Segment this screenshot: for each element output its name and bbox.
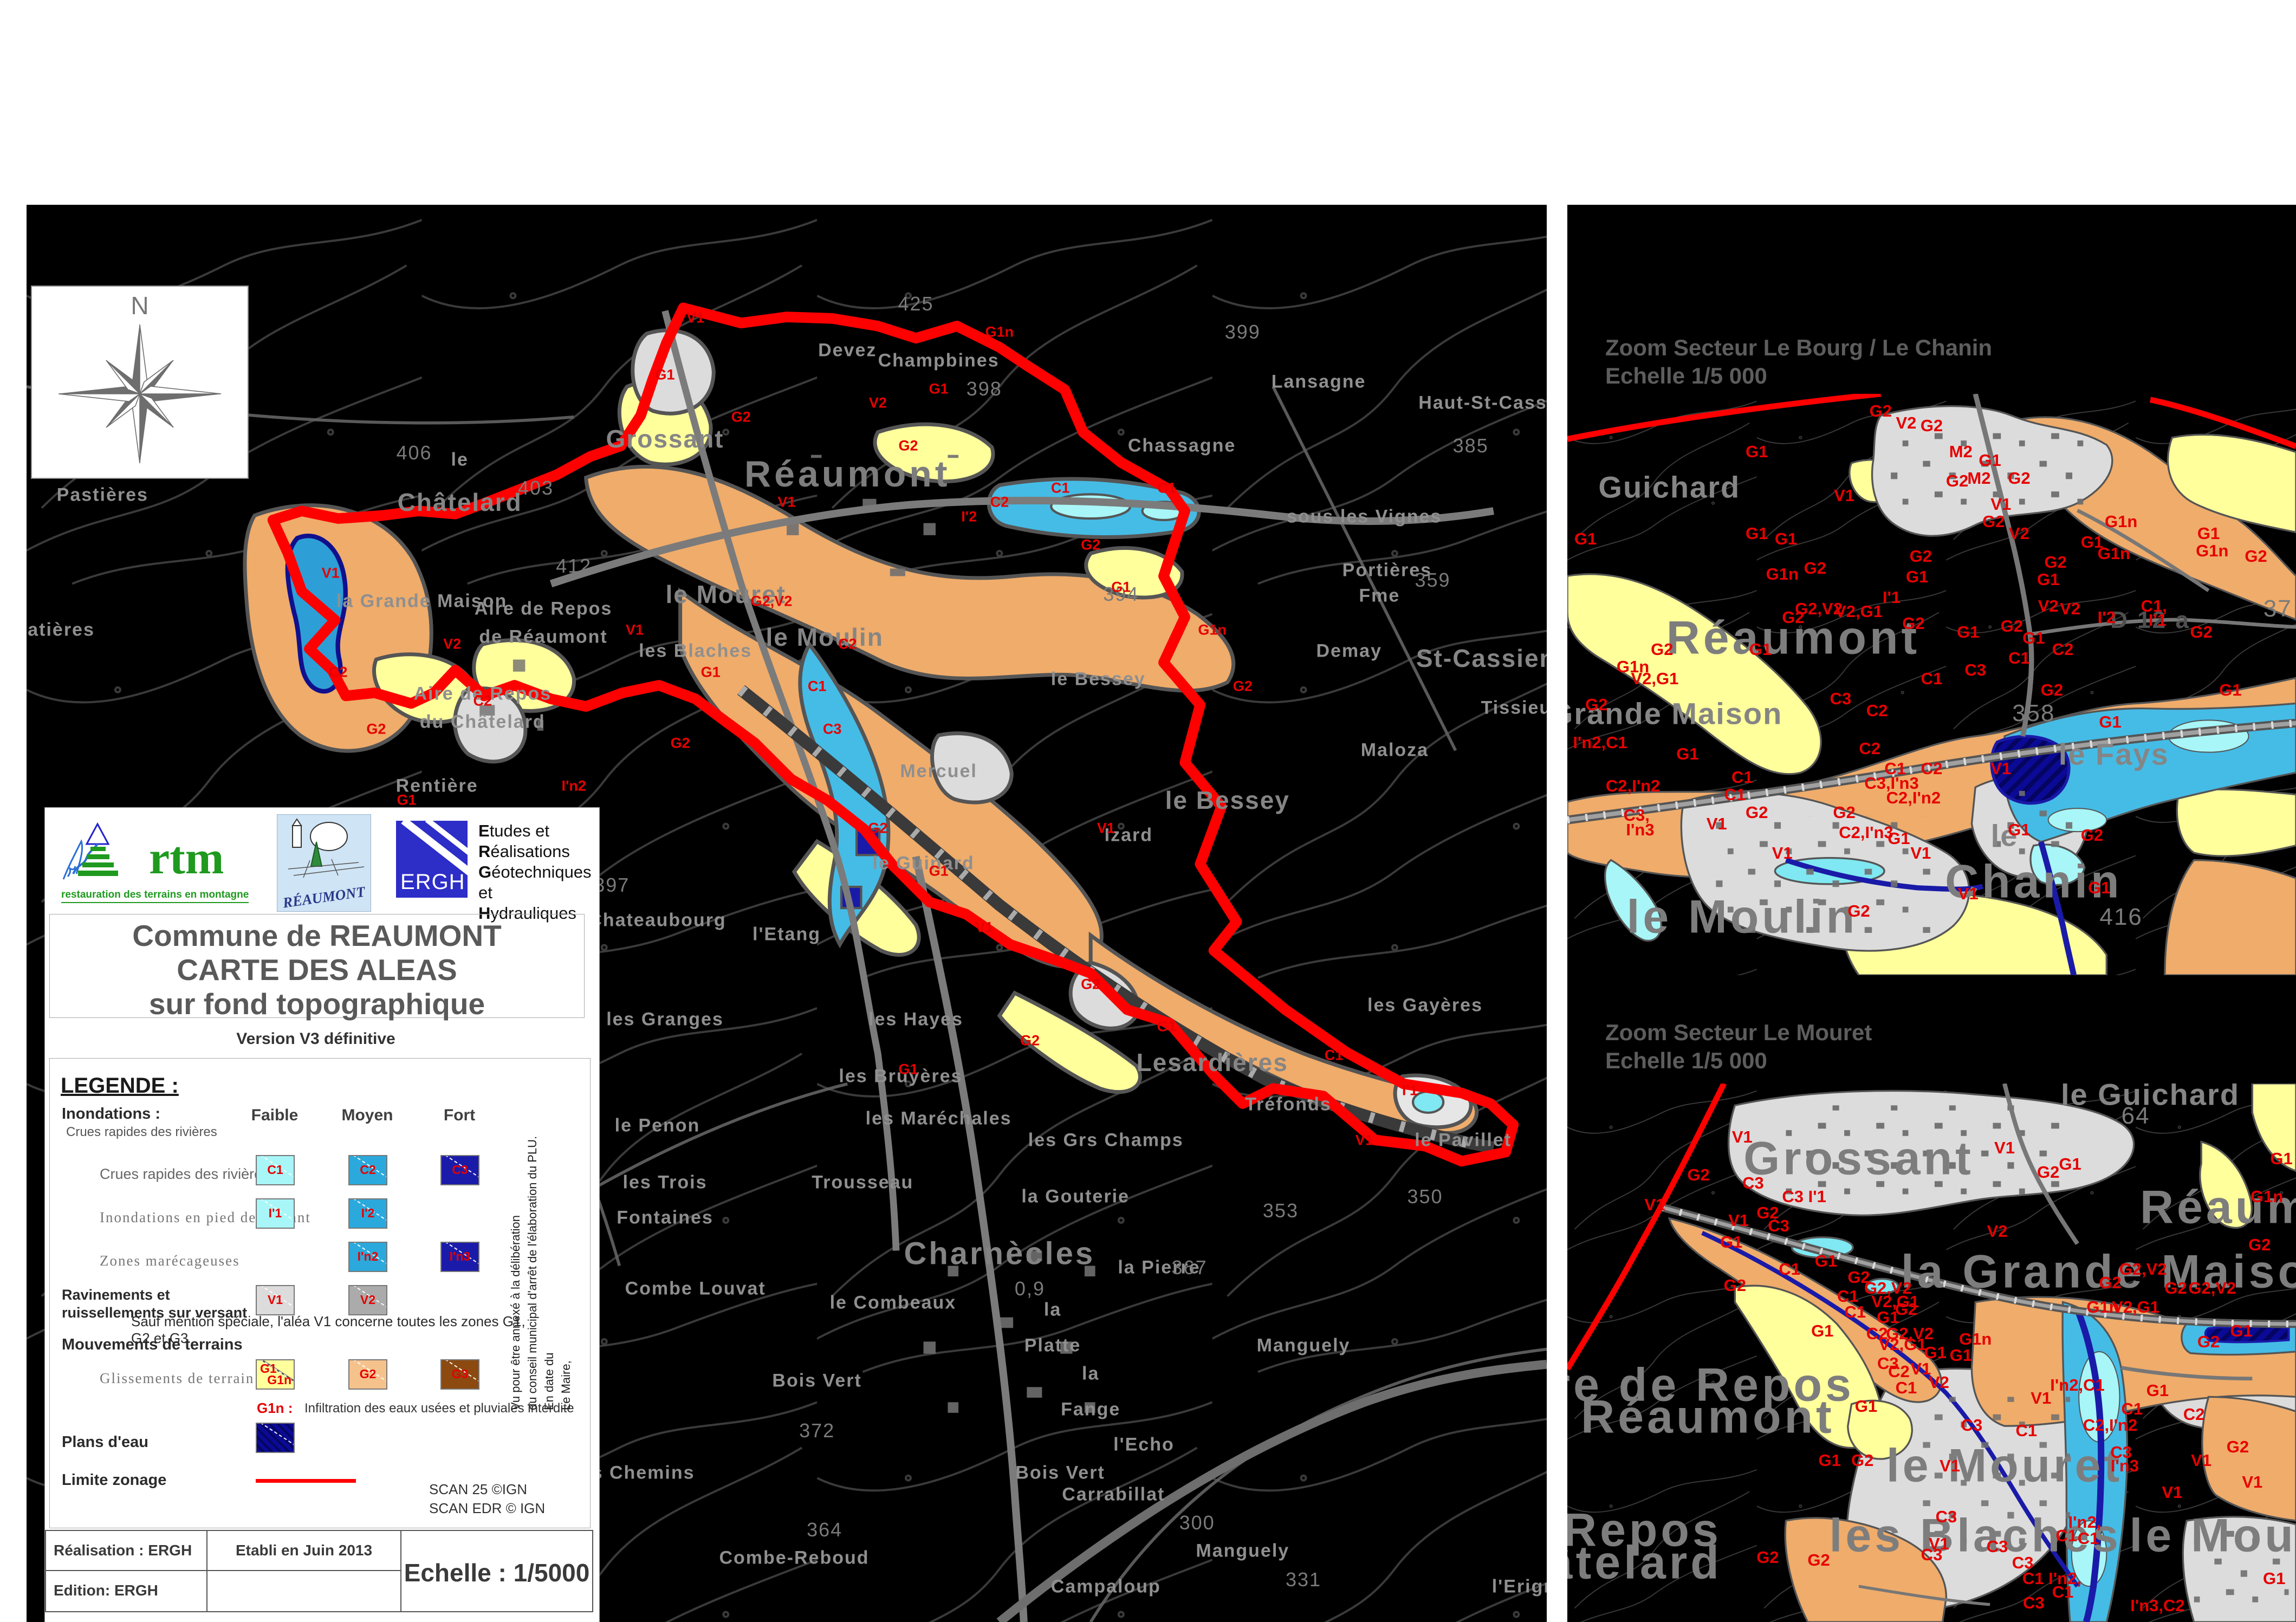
zoom1-zone-code: G2 — [1982, 512, 2005, 531]
map-elevation-label: 300 — [1179, 1511, 1215, 1534]
realisation-cell: Réalisation : ERGH — [46, 1531, 207, 1571]
map-elevation-label: 412 — [556, 555, 592, 578]
zoom1-zone-code: G2 — [1902, 614, 1924, 633]
map-place-label: les Gayères — [1367, 995, 1483, 1016]
map-place-label: Lesardières — [1137, 1048, 1288, 1077]
zoom2-zone-code: G2 — [1756, 1548, 1779, 1567]
map-place-label: Charnècles — [904, 1235, 1095, 1271]
legend-row-crues-label: Crues rapides des rivières — [100, 1166, 270, 1183]
zoom1-zone-code: G2 — [1833, 803, 1855, 822]
map-place-label: les Hayes — [868, 1009, 963, 1030]
zoom2-zone-code: G2,V2 — [2188, 1279, 2236, 1298]
hazard-zone-code: G1 — [656, 366, 675, 383]
hazard-zone-code: G1 — [898, 1061, 918, 1078]
hazard-zone-code: G1 — [929, 862, 949, 879]
map-place-label: Grossant — [606, 424, 724, 453]
zoom1-zone-code: M2 — [1949, 442, 1973, 462]
map-place-label: l'Echo — [1113, 1435, 1175, 1456]
zoom1-place-label: 358 — [2012, 700, 2055, 727]
info-table: Réalisation : ERGH Etabli en Juin 2013 E… — [45, 1530, 593, 1612]
zoom1-zone-code: G2 — [2190, 622, 2212, 642]
zoom1-zone-code: C1 — [1731, 768, 1753, 787]
zoom1-zone-code: C3 — [1830, 689, 1852, 709]
zoom1-zone-code: G2 — [1804, 559, 1826, 578]
zoom1-zone-code: G1 — [1979, 451, 2001, 470]
hazard-zone-code: G1 — [397, 791, 416, 808]
map-elevation-label: 367 — [1172, 1256, 1208, 1279]
hazard-zone-code: I'2 — [961, 508, 977, 525]
map-place-label: Lansagne — [1272, 372, 1366, 393]
zoom1-zone-code: V2 — [2038, 596, 2059, 616]
zoom1-zone-code: V1 — [1958, 884, 1979, 904]
map-title-line2: CARTE DES ALEAS — [50, 953, 584, 987]
map-place-label: la Gouterie — [1021, 1186, 1130, 1208]
map-place-label: Châtelard — [398, 488, 522, 517]
hazard-zone-code: V1 — [975, 919, 993, 936]
zoom2-zone-code: G2 — [1724, 1276, 1746, 1295]
hazard-zone-code: I'n2 — [561, 777, 586, 794]
map-title-line3: sur fond topographique — [50, 987, 584, 1021]
zoom1-zone-code: C2 — [2052, 640, 2074, 659]
map-elevation-label: 359 — [1415, 569, 1451, 592]
zoom1-zone-code: V1 — [1834, 486, 1854, 505]
hazard-zone-code: V1 — [322, 565, 340, 582]
zoom-sector-1-scale: Echelle 1/5 000 — [1605, 362, 1992, 390]
zoom2-zone-code: G2 — [2248, 1235, 2271, 1255]
zoom1-zone-code: I'1 — [1883, 588, 1901, 607]
zoom1-zone-code: G2 — [1921, 416, 1943, 436]
map-place-label: Combe Louvat — [625, 1279, 766, 1300]
zoom1-zone-code: V2 — [1896, 413, 1916, 433]
zoom2-zone-code: V1 — [1910, 1359, 1931, 1379]
legend-col-fort: Fort — [427, 1106, 492, 1125]
zoom1-zone-code: G2 — [2081, 826, 2103, 845]
map-place-label: les Grs Champs — [1028, 1130, 1184, 1151]
map-elevation-label: 399 — [1225, 321, 1261, 343]
map-place-label: Champbines — [878, 350, 1000, 371]
legend-row-glissements-label: Glissements de terrain — [100, 1370, 254, 1387]
swatch-c3: C3 — [440, 1155, 479, 1185]
map-place-label: St-Cassien — [1416, 644, 1547, 673]
map-elevation-label: 353 — [1263, 1199, 1299, 1222]
zoom-sector-column: Zoom Secteur Le Bourg / Le Chanin Echell… — [1567, 205, 2296, 1622]
hazard-zone-code: G2 — [898, 437, 918, 454]
zoom1-zone-code: G1 — [1775, 529, 1797, 549]
map-place-label: Tréfonds — [1245, 1094, 1332, 1115]
zoom2-zone-code: V1 — [1994, 1138, 2015, 1158]
map-place-label: Demay — [1316, 641, 1382, 662]
swatch-i1: I'1 — [256, 1198, 295, 1229]
map-place-label: du Châtelard — [420, 711, 546, 732]
map-place-label: urbatières — [27, 619, 95, 640]
map-place-label: le Combeaux — [830, 1293, 957, 1314]
map-place-label: l'Erign — [1492, 1576, 1547, 1597]
commune-logo-drawing — [277, 815, 369, 880]
hazard-zone-code: V1 — [777, 494, 795, 511]
swatch-c2: C2 — [348, 1155, 387, 1185]
zoom2-zone-code: V1 — [1728, 1211, 1749, 1230]
legend-section-inondations-sub: Crues rapides des rivières — [66, 1125, 217, 1140]
zoom2-zone-code: I'n2,C1 — [2050, 1376, 2104, 1395]
map-place-label: Bois Vert — [772, 1371, 861, 1392]
map-elevation-label: 406 — [396, 442, 432, 464]
hazard-zone-code: G1 — [701, 664, 721, 681]
hazard-zone-code: G2 — [1081, 536, 1100, 553]
zoom1-zone-code: C1 — [2008, 648, 2030, 668]
swatch-in3: I'n3 — [440, 1242, 479, 1272]
zoom1-zone-code: C3 — [1964, 660, 1986, 680]
zoom2-zone-code: G2 — [2197, 1332, 2220, 1352]
map-place-label: le Guinard — [872, 853, 974, 874]
map-place-label: Mercuel — [900, 761, 977, 782]
map-elevation-label: 364 — [807, 1519, 842, 1541]
zoom1-zone-code: G1 — [2219, 680, 2241, 700]
swatch-i2: I'2 — [348, 1198, 387, 1229]
zoom1-zone-code: G1 — [1746, 524, 1768, 543]
zoom2-zone-code: G1n — [2250, 1187, 2283, 1206]
map-place-label: Fontaines — [617, 1208, 714, 1229]
map-place-label: Campaloup — [1051, 1576, 1161, 1597]
zoom1-zone-code: G1 — [2008, 820, 2030, 840]
map-elevation-label: 403 — [518, 477, 554, 499]
zoom2-zone-code: C3 I'1 — [1782, 1187, 1826, 1206]
zoom2-zone-code: C3 — [2023, 1593, 2045, 1613]
zoom2-zone-code: G1 — [1819, 1451, 1841, 1470]
zoom1-zone-code: G1 — [2022, 628, 2045, 648]
zoom2-zone-code: C1 — [2052, 1582, 2074, 1602]
zoom2-zone-code: G2 — [2099, 1273, 2121, 1293]
hazard-zone-code: V1 — [1097, 820, 1115, 837]
map-place-label: Fange — [1061, 1399, 1120, 1420]
zoom1-zone-code: C2 — [1921, 759, 1943, 778]
map-place-label: Bois Vert — [1015, 1463, 1105, 1484]
hazard-zone-code: V1 — [686, 310, 704, 327]
hazard-zone-code: C2 — [329, 664, 348, 681]
commune-logo: RÉAUMONT — [277, 814, 371, 912]
zoom-sector-2-title: Zoom Secteur Le Mouret Echelle 1/5 000 — [1605, 1018, 1872, 1075]
hazard-zone-code: G2 — [868, 820, 887, 837]
ergh-logo-square-icon: ERGH — [396, 821, 468, 898]
zoom1-zone-code: C2 — [1859, 739, 1880, 758]
hazard-zone-code: G2 — [671, 735, 690, 752]
map-place-label: les Blaches — [639, 641, 752, 662]
ergh-acronym: ERGH — [400, 870, 465, 894]
swatch-c1: C1 — [256, 1155, 295, 1185]
map-elevation-label: 398 — [967, 378, 1002, 400]
zoom2-zone-code: G1n — [1959, 1329, 1992, 1349]
ign-credits: SCAN 25 ©IGN SCAN EDR © IGN — [429, 1480, 586, 1518]
hazard-zone-code: C2 — [838, 635, 857, 652]
hazard-zone-code: V2 — [869, 395, 887, 412]
hazard-zone-code: G2 — [731, 409, 751, 426]
zoom2-zone-code: G2 — [1807, 1550, 1830, 1570]
zoom1-zone-code: C2,I'n2 — [1886, 788, 1941, 808]
zoom2-zone-code: C2,I'n2 — [2083, 1416, 2137, 1435]
ergh-fullname: Etudes et Réalisations Géotechniques et … — [478, 821, 592, 924]
zoom2-zone-code: V2,G1 — [2112, 1297, 2159, 1317]
zoom2-zone-code: V1 — [1732, 1127, 1753, 1147]
hazard-zone-code: V1 — [626, 621, 644, 638]
legend-panel: rtm restauration des terrains en montagn… — [44, 807, 600, 1622]
zoom-sector-1-title-line: Zoom Secteur Le Bourg / Le Chanin — [1605, 334, 1992, 362]
map-place-label: le Moulin — [766, 622, 883, 652]
hazard-zone-code: G1 — [1157, 1018, 1176, 1035]
hazard-zone-code: G1 — [1111, 579, 1131, 596]
edition-cell: Edition: ERGH — [46, 1571, 207, 1611]
zoom1-place-label: le Moulin — [1626, 890, 1858, 944]
zoom1-zone-code: G1 — [2197, 524, 2220, 543]
zoom-map-le-mouret: le GuichardGrossantla Grande MaisonRéaum… — [1567, 1084, 2296, 1622]
map-elevation-label: 425 — [898, 293, 933, 315]
zoom1-zone-code: G2 — [1946, 471, 1968, 491]
hazard-zone-code: G1 — [929, 381, 949, 398]
map-place-label: Carrabillat — [1062, 1484, 1165, 1505]
hazard-zone-code: C2 — [474, 692, 492, 709]
zoom2-zone-code: C1 — [1779, 1260, 1800, 1279]
zoom2-zone-code: G1 — [2059, 1154, 2081, 1174]
zoom2-place-label: 64 — [2122, 1102, 2150, 1130]
zoom2-zone-code: V1 — [2191, 1451, 2211, 1470]
zoom2-zone-code: C1 — [2016, 1421, 2038, 1441]
etabli-cell: Etabli en Juin 2013 — [207, 1531, 401, 1571]
zoom2-zone-code: G2 — [1687, 1165, 1709, 1185]
swatch-plans-deau — [256, 1423, 295, 1453]
map-elevation-label: 372 — [799, 1419, 835, 1442]
map-place-label: sous les Vignes — [1287, 506, 1442, 527]
map-place-label: Haut-St-Cassi — [1418, 393, 1547, 414]
map-place-label: Platte — [1024, 1335, 1081, 1356]
zoom1-zone-code: G1 — [1957, 622, 1979, 642]
map-place-label: les Trois — [623, 1172, 708, 1193]
zoom1-zone-code: G1 — [1746, 442, 1768, 462]
zoom1-zone-code: I'2 — [2098, 608, 2116, 627]
hazard-map-sheet: le Grand VoyePastièresurbatièresleChâtel… — [0, 0, 2296, 1622]
zoom2-zone-code: C2 — [2183, 1405, 2205, 1424]
zoom2-zone-code: G1 — [1720, 1232, 1742, 1252]
zoom1-zone-code: G1 — [2037, 570, 2059, 589]
zoom2-zone-code: G2 — [2227, 1437, 2249, 1457]
zoom2-zone-code: C3 — [1936, 1507, 1957, 1527]
map-place-label: le Bessey — [1165, 786, 1290, 815]
hazard-zone-code: G2 — [366, 721, 386, 737]
zoom2-zone-code: G2,V2 — [2119, 1260, 2167, 1279]
zoom1-zone-code: I'n2,C1 — [1573, 733, 1627, 752]
zoom2-zone-code: V2 — [1929, 1373, 1949, 1392]
zoom1-zone-code: G2 — [1746, 803, 1768, 822]
legend-section-mouvements: Mouvements de terrains — [62, 1336, 243, 1354]
map-elevation-label: 350 — [1407, 1185, 1443, 1208]
zoom2-zone-code: V2 — [1987, 1222, 2008, 1241]
legend-section-inondations: Inondations : — [62, 1105, 160, 1123]
echelle-cell: Echelle : 1/5000 — [401, 1531, 592, 1611]
rtm-logo: rtm restauration des terrains en montagn… — [57, 820, 274, 893]
hazard-zone-code: C2 — [990, 494, 1009, 511]
zoom1-zone-code: G1n — [2105, 512, 2137, 531]
zoom2-zone-code: C3 — [1742, 1173, 1764, 1193]
empty-cell — [207, 1571, 401, 1611]
zoom2-zone-code: V1 — [2031, 1389, 2051, 1408]
map-place-label: de Réaumont — [479, 626, 607, 647]
zoom2-place-label: le Moulin — [2130, 1509, 2296, 1562]
zoom1-zone-code: G1 — [1574, 529, 1597, 549]
zoom2-zone-code: V1 — [1644, 1195, 1665, 1215]
map-place-label: Chassagne — [1128, 435, 1236, 456]
zoom1-zone-code: G2 — [1910, 547, 1932, 566]
legend-heading: LEGENDE : — [61, 1074, 179, 1098]
zoom2-zone-code: C1 — [1896, 1378, 1917, 1398]
rtm-subtitle: restauration des terrains en montagne — [61, 889, 249, 903]
zoom2-zone-code: G2 — [1895, 1300, 1917, 1319]
map-elevation-label: 385 — [1453, 434, 1489, 457]
legend-row-marecage-label: Zones marécageuses — [100, 1253, 240, 1269]
zoom1-zone-code: V1 — [1990, 495, 2011, 514]
zoom1-zone-code: G2 — [1847, 901, 1870, 921]
zoom2-place-label: de Réaumont — [1567, 1391, 1835, 1444]
zoom1-zone-code: G2 — [2245, 547, 2267, 566]
map-place-label: Manguely — [1196, 1541, 1289, 1562]
zoom1-zone-code: M2 — [1967, 469, 1990, 488]
zoom-sector-2-title-line: Zoom Secteur Le Mouret — [1605, 1018, 1872, 1047]
zoom2-place-label: le Mouret — [1886, 1439, 2123, 1493]
zoom2-zone-code: G1 — [2146, 1381, 2169, 1400]
hazard-zone-code: G2,V2 — [751, 593, 793, 610]
zoom2-place-label: le Guichard — [2061, 1084, 2240, 1112]
hazard-zone-code: G2 — [1020, 1033, 1040, 1049]
zoom1-zone-code: C2,I'n2 — [1606, 776, 1660, 796]
hazard-zone-code: C3 — [823, 721, 842, 737]
zoom1-place-label: Guichard — [1598, 469, 1740, 504]
map-place-label: le Pavillet — [1415, 1130, 1512, 1151]
hazard-zone-code: I'1 — [1402, 1082, 1418, 1099]
legend-limite-label: Limite zonage — [62, 1471, 166, 1489]
rtm-wordmark: rtm — [149, 831, 224, 885]
zoom1-zone-code: G2 — [2001, 617, 2023, 636]
hazard-zone-code: C1 — [1157, 480, 1176, 497]
zoom1-place-label: 37 — [2263, 595, 2292, 622]
map-place-label: Combe-Reboud — [719, 1548, 869, 1569]
zoom2-zone-code: G1 — [1815, 1251, 1837, 1271]
hazard-zone-code: C1 — [1325, 1047, 1344, 1063]
zoom2-zone-code: G2 — [2037, 1163, 2059, 1182]
zoom1-zone-code: G2 — [1585, 695, 1607, 715]
zoom1-place-label: 416 — [2099, 904, 2142, 931]
zoom2-place-label: Grossant — [1743, 1132, 1974, 1186]
zoom1-place-label: le Fays — [2059, 737, 2169, 772]
zoom1-zone-code: G2 — [1651, 640, 1673, 659]
zoom1-zone-code: V1 — [1707, 814, 1727, 834]
map-place-label: Aire de Repos — [475, 598, 613, 619]
map-place-label: la — [1082, 1364, 1099, 1385]
logos-row: rtm restauration des terrains en montagn… — [45, 812, 599, 910]
map-title-line1: Commune de REAUMONT — [50, 919, 584, 953]
zoom1-zone-code: C2,I'n3 — [1839, 823, 1893, 842]
zoom1-zone-code: G2 — [1870, 401, 1892, 421]
zoom1-zone-code: V2 — [2060, 599, 2080, 619]
zoom-sector-1-title: Zoom Secteur Le Bourg / Le Chanin Echell… — [1605, 334, 1992, 390]
swatch-g1-g1n: G1G1n — [256, 1359, 295, 1390]
legend-g1n-prefix: G1n : — [257, 1400, 293, 1417]
zoom2-zone-code: C1 — [1844, 1302, 1866, 1322]
zoom2-zone-code: G2 — [1851, 1451, 1873, 1470]
map-place-label: la — [1044, 1300, 1061, 1321]
zoom1-zone-code: G1n — [1766, 565, 1799, 584]
zoom2-zone-code: G1 — [2263, 1569, 2285, 1588]
zoom2-zone-code: G1 — [2270, 1149, 2292, 1169]
map-place-label: le — [451, 449, 469, 470]
map-place-label: Manguely — [1257, 1335, 1351, 1356]
compass-rose: N — [31, 286, 249, 479]
map-place-label: l'Etang — [753, 924, 821, 945]
map-place-label: les Granges — [606, 1009, 724, 1030]
map-place-label: Chateaubourg — [588, 910, 726, 931]
hazard-zone-code: V2 — [443, 635, 461, 652]
compass-star-icon — [32, 313, 248, 475]
zoom1-zone-code: G1 — [1906, 567, 1928, 587]
map-place-label: Réaumont — [744, 453, 950, 495]
zoom1-zone-code: V2,G1 — [1835, 602, 1883, 621]
zoom2-zone-code: C3 — [1768, 1216, 1789, 1236]
map-place-label: les Maréchales — [866, 1108, 1012, 1130]
zoom1-zone-code: G1 — [2088, 878, 2110, 898]
zoom1-zone-code: G1n — [2098, 544, 2130, 563]
zoom2-zone-code: V1 — [2162, 1483, 2182, 1502]
zoom1-zone-code: V1 — [1772, 844, 1793, 863]
zoom1-zone-code: G2 — [2008, 469, 2030, 488]
zoom2-zone-code: V2,G1 — [1879, 1335, 1927, 1354]
swatch-v2: V2 — [348, 1285, 387, 1315]
zoom-sector-2-scale: Echelle 1/5 000 — [1605, 1047, 1872, 1075]
limite-zonage-line — [256, 1479, 356, 1483]
zoom2-zone-code: G1 — [1811, 1321, 1833, 1341]
zoom2-zone-code: V1 — [1940, 1456, 1960, 1476]
map-place-label: Maloza — [1361, 740, 1429, 761]
zoom1-zone-code: G1 — [1888, 829, 1910, 848]
zoom1-zone-code: V1 — [1990, 759, 2011, 778]
swatch-g3: G3 — [440, 1359, 479, 1390]
zoom-map-le-bourg-le-chanin: GuichardRéaumontla Grande Maisonle Mouli… — [1567, 394, 2296, 975]
map-elevation-label: 331 — [1286, 1568, 1321, 1591]
swatch-in2: I'n2 — [348, 1242, 387, 1272]
hazard-zone-code: G2 — [1081, 976, 1100, 992]
map-place-label: le Penon — [615, 1115, 701, 1137]
zoom1-zone-code: G2 — [2041, 680, 2063, 700]
map-place-label: Fme — [1359, 586, 1400, 607]
zoom1-zone-code: V2 — [2009, 524, 2029, 543]
hazard-zone-code: G1n — [985, 324, 1014, 341]
commune-logo-name: RÉAUMONT — [280, 883, 368, 912]
legend-plans-deau-label: Plans d'eau — [62, 1433, 148, 1451]
rtm-mountain-icon — [57, 820, 138, 890]
zoom2-place-label: Châtelard — [1567, 1536, 1722, 1589]
zoom2-zone-code: I'n3 — [2111, 1456, 2139, 1476]
zoom1-zone-code: V2,G1 — [1631, 669, 1678, 689]
hazard-zone-code: G1n — [1198, 621, 1227, 638]
legend-col-moyen: Moyen — [335, 1106, 400, 1125]
map-place-label: Pastières — [57, 485, 148, 506]
zoom2-zone-code: G1 — [2230, 1321, 2252, 1341]
map-title-block: Commune de REAUMONT CARTE DES ALEAS sur … — [49, 914, 585, 1018]
zoom1-zone-code: G1 — [2099, 712, 2121, 732]
zoom1-zone-code: C2 — [1866, 701, 1888, 721]
swatch-g2: G2 — [348, 1359, 387, 1390]
zoom2-zone-code: C3 — [1987, 1537, 2008, 1556]
hazard-zone-code: G2 — [1233, 678, 1253, 695]
zoom1-zone-code: C1 — [1921, 669, 1943, 689]
zoom2-zone-code: C3 — [2012, 1553, 2034, 1573]
zoom2-zone-code: V1 — [2242, 1472, 2262, 1492]
legend-col-faible: Faible — [242, 1106, 307, 1125]
zoom2-zone-code: I'n3,C2 — [2130, 1596, 2184, 1615]
